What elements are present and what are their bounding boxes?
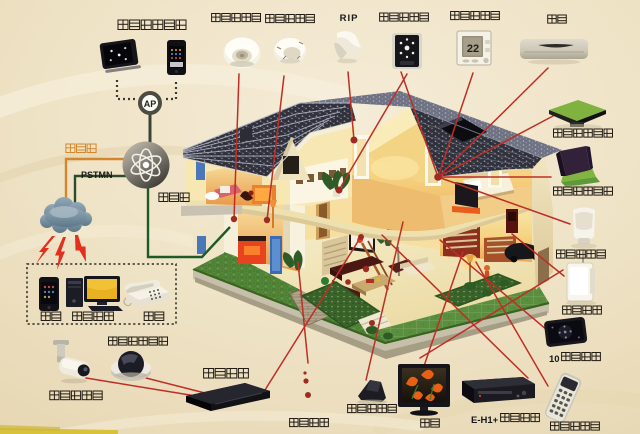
- svg-text:AP: AP: [144, 99, 157, 109]
- svg-text:22: 22: [467, 43, 479, 55]
- svg-text:RIP: RIP: [340, 13, 359, 24]
- svg-text:10: 10: [549, 354, 560, 365]
- svg-text:PSTMN: PSTMN: [81, 170, 113, 180]
- svg-text:E-H1+: E-H1+: [471, 415, 499, 426]
